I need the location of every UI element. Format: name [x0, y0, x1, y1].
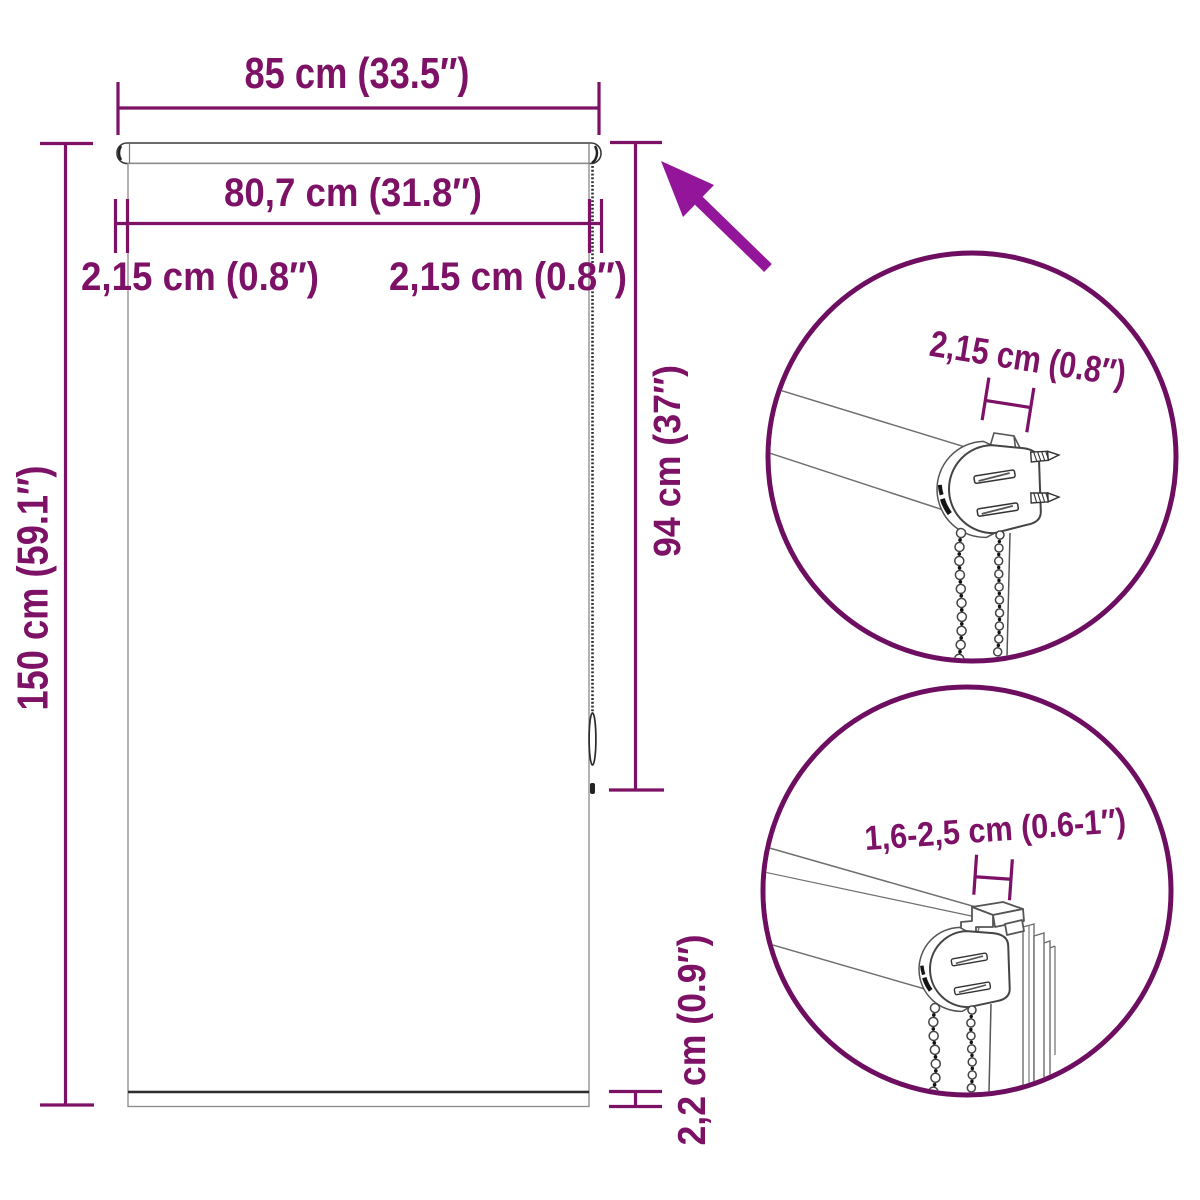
svg-text:2,2 cm (0.9″): 2,2 cm (0.9″) — [671, 935, 714, 1146]
svg-text:2,15 cm (0.8″): 2,15 cm (0.8″) — [389, 255, 627, 299]
svg-text:94 cm (37″): 94 cm (37″) — [647, 365, 689, 557]
svg-text:2,15 cm (0.8″): 2,15 cm (0.8″) — [81, 255, 319, 299]
svg-text:85 cm (33.5″): 85 cm (33.5″) — [245, 49, 470, 98]
svg-text:80,7 cm (31.8″): 80,7 cm (31.8″) — [224, 171, 482, 215]
svg-text:150 cm (59.1″): 150 cm (59.1″) — [9, 466, 58, 711]
